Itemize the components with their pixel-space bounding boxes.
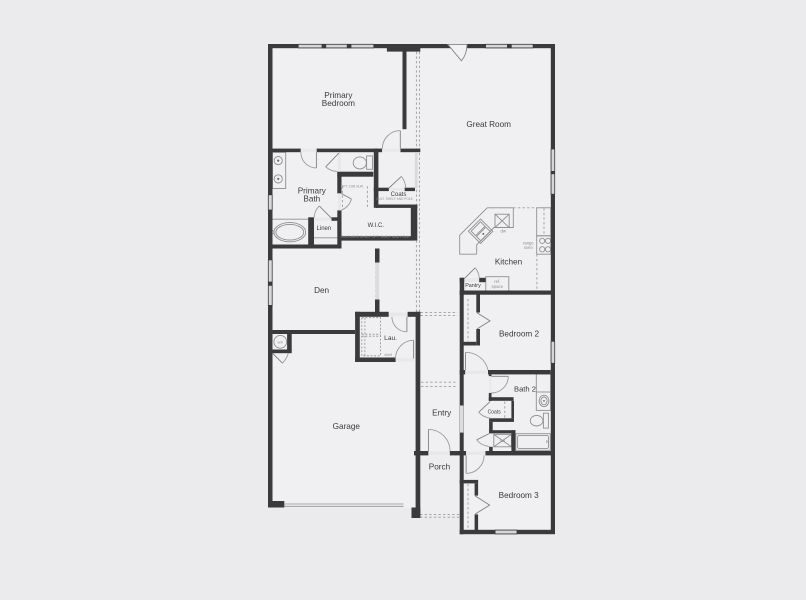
svg-text:Garage: Garage [333, 422, 361, 431]
svg-text:w/h: w/h [277, 340, 283, 344]
svg-text:dw: dw [500, 229, 506, 234]
svg-text:Bedroom 2: Bedroom 2 [499, 330, 539, 339]
svg-text:Porch: Porch [429, 462, 451, 471]
svg-text:t&s: t&s [500, 439, 506, 443]
svg-text:Bath 2: Bath 2 [514, 385, 536, 394]
svg-text:Kitchen: Kitchen [495, 257, 523, 266]
svg-text:rangeoven: rangeoven [523, 241, 534, 251]
svg-text:OPT. CAB SUR.: OPT. CAB SUR. [341, 184, 364, 188]
svg-text:Den: Den [314, 286, 329, 295]
svg-text:W.I.C.: W.I.C. [368, 223, 385, 229]
svg-text:Entry: Entry [432, 409, 452, 418]
svg-text:shelf: shelf [384, 353, 392, 357]
svg-text:Linen: Linen [317, 226, 332, 232]
svg-text:CULT. SHELF AND POLE: CULT. SHELF AND POLE [376, 197, 413, 201]
svg-text:Coats: Coats [488, 409, 502, 415]
svg-text:Great Room: Great Room [466, 120, 511, 129]
svg-text:Pantry: Pantry [465, 283, 481, 289]
svg-text:Lau.: Lau. [384, 335, 397, 342]
svg-text:PrimaryBedroom: PrimaryBedroom [322, 91, 355, 108]
svg-text:Bedroom 3: Bedroom 3 [499, 491, 539, 500]
svg-text:CULTURED SHELF OPT. SHELF AND: CULTURED SHELF OPT. SHELF AND POLE [341, 235, 410, 239]
